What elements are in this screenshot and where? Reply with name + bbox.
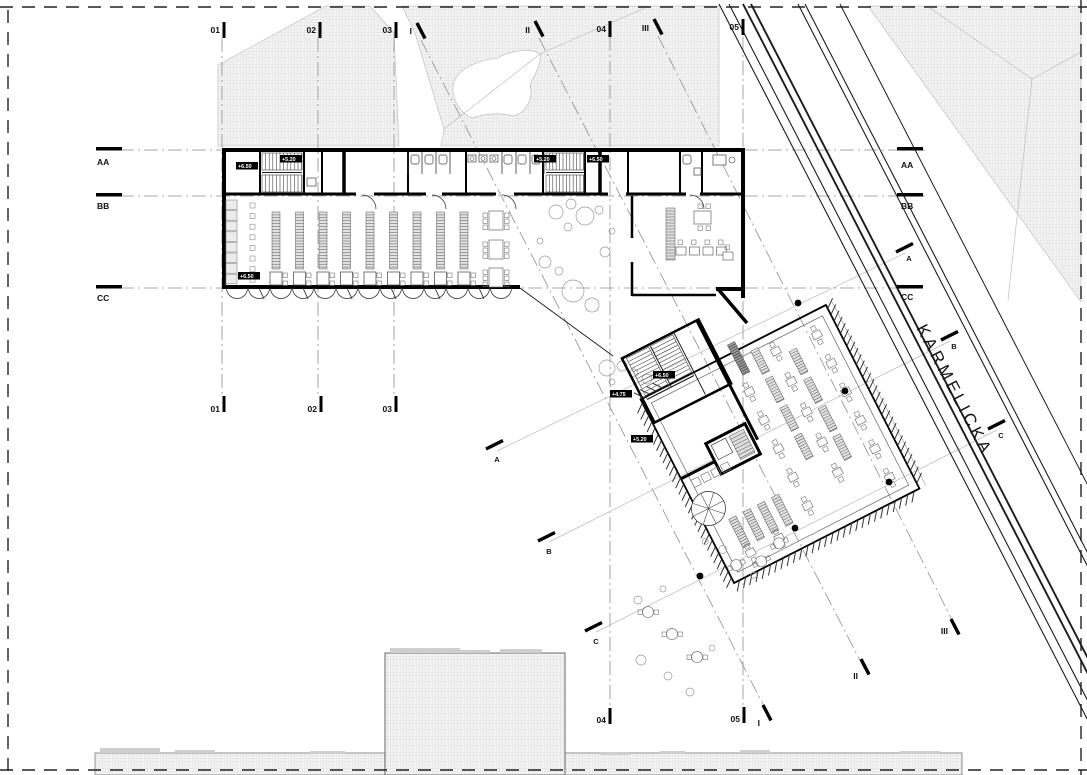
- level-marker: +5.20: [280, 155, 302, 163]
- grid-col-05-bottom: 05: [731, 714, 741, 724]
- section-B-street: B: [951, 342, 957, 351]
- context-building-south: [385, 653, 565, 775]
- level-marker: +5.20: [534, 155, 556, 163]
- grid-row-AA-right: AA: [901, 160, 913, 170]
- level-marker: +6.50: [236, 162, 258, 170]
- svg-text:+6.50: +6.50: [238, 164, 252, 170]
- grid-col-02-top: 02: [307, 25, 317, 35]
- grid-col-02-bottom: 02: [308, 404, 318, 414]
- svg-text:+6.50: +6.50: [240, 274, 254, 280]
- level-marker: +4.75: [610, 390, 632, 398]
- grid-diag-III-top: III: [642, 23, 649, 33]
- section-C-street: C: [998, 431, 1004, 440]
- section-A-left: A: [494, 455, 500, 464]
- grid-col-03-bottom: 03: [383, 404, 393, 414]
- grid-diag-II-top: II: [525, 25, 530, 35]
- level-marker: +6.50: [653, 371, 675, 379]
- floor-plan-drawing: KARMELICKA +6.50 +5.20 +5.20 +6.50 +6.50…: [0, 0, 1087, 775]
- grid-row-BB-right: BB: [901, 201, 913, 211]
- grid-row-AA-left: AA: [97, 157, 109, 167]
- context-block-east: [868, 6, 1081, 302]
- svg-text:+5.20: +5.20: [633, 437, 647, 443]
- level-marker: +6.50: [238, 272, 260, 280]
- svg-text:+4.75: +4.75: [612, 392, 626, 398]
- svg-text:+5.20: +5.20: [282, 157, 296, 163]
- grid-col-05-top: 05: [730, 22, 740, 32]
- grid-diag-I-bottom: I: [758, 718, 760, 728]
- section-C-left: C: [593, 637, 599, 646]
- grid-row-CC-right: CC: [901, 292, 913, 302]
- grid-col-04-top: 04: [597, 24, 607, 34]
- svg-text:+5.20: +5.20: [536, 157, 550, 163]
- level-marker: +6.50: [587, 155, 609, 163]
- grid-diag-I-top: I: [410, 26, 412, 36]
- grid-col-01-bottom: 01: [211, 404, 221, 414]
- section-A-street: A: [906, 254, 912, 263]
- grid-col-01-top: 01: [211, 25, 221, 35]
- grid-row-BB-left: BB: [97, 201, 109, 211]
- grid-col-04-bottom: 04: [597, 715, 607, 725]
- grid-diag-II-bottom: II: [853, 671, 858, 681]
- grid-col-03-top: 03: [383, 25, 393, 35]
- context-blocks: [95, 6, 1081, 775]
- svg-text:+6.50: +6.50: [655, 373, 669, 379]
- grid-row-CC-left: CC: [97, 293, 109, 303]
- grid-diag-III-bottom: III: [941, 626, 948, 636]
- section-B-left: B: [546, 547, 552, 556]
- level-marker: +5.20: [631, 435, 653, 443]
- svg-text:+6.50: +6.50: [589, 157, 603, 163]
